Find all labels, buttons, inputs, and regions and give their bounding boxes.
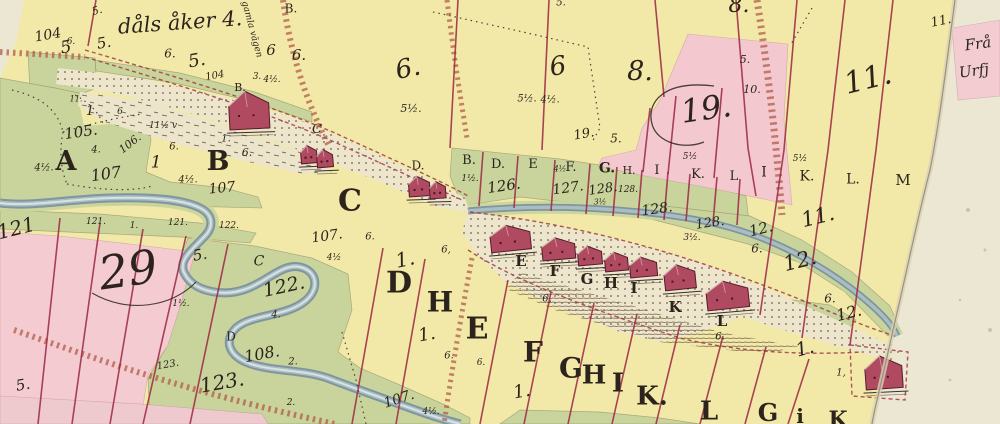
neighbor-sheet-corner <box>952 20 1000 100</box>
historical-map-scan: 5.dåls åker 4.B.1046.55.6.5.104gamla väg… <box>0 0 1000 424</box>
map-canvas <box>0 0 1000 424</box>
